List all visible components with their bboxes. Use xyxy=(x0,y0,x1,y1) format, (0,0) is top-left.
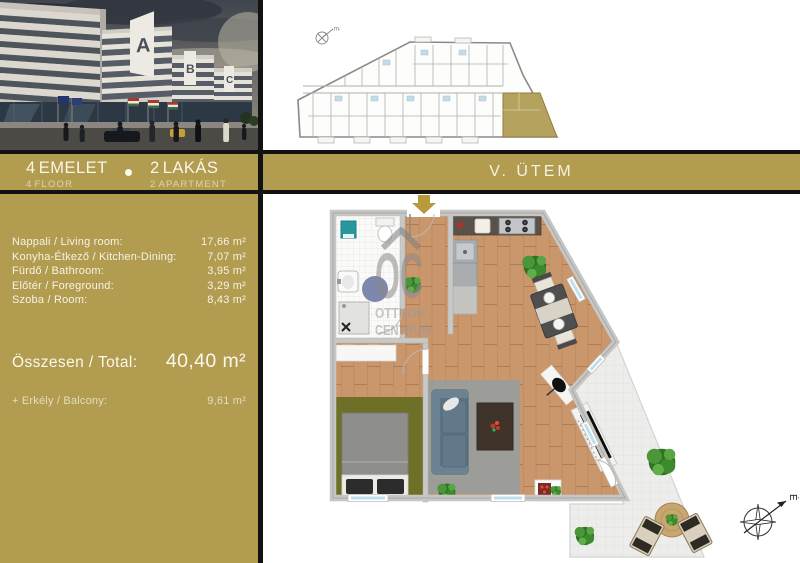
watermark-line2: CENTRUM xyxy=(375,322,431,339)
room-label: Előtér / Foreground: xyxy=(12,280,114,294)
stove xyxy=(499,218,535,234)
room-row: Előtér / Foreground: 3,29 m² xyxy=(12,280,246,294)
room-label: Konyha-Étkező / Kitchen-Dining: xyxy=(12,251,177,265)
room-value: 3,95 m² xyxy=(207,265,246,279)
kettle xyxy=(457,222,463,228)
horizontal-divider xyxy=(0,150,800,154)
building-a-label: A xyxy=(136,34,150,57)
total-value: 40,40 m² xyxy=(166,350,246,373)
separator-dot-icon xyxy=(125,169,132,176)
room-value: 17,66 m² xyxy=(201,236,246,250)
room-value: 8,43 m² xyxy=(207,294,246,308)
apartment-value-en: 2 xyxy=(150,179,156,190)
watermark: OC OTTHON CENTRUM xyxy=(375,230,431,339)
coffee-table xyxy=(477,403,513,450)
apartment-value: 2 xyxy=(150,159,160,178)
shower xyxy=(339,302,369,334)
room-value: 7,07 m² xyxy=(207,251,246,265)
washing-machine xyxy=(341,221,356,238)
balcony-value: 9,61 m² xyxy=(207,395,246,407)
room-value: 3,29 m² xyxy=(207,280,246,294)
total-row: Összesen / Total: 40,40 m² xyxy=(12,350,246,373)
room-list: Nappali / Living room: 17,66 m² Konyha-É… xyxy=(12,236,246,308)
floor-label-hu: EMELET xyxy=(39,159,108,178)
kitchen-counter xyxy=(453,216,541,235)
room-row: Fürdő / Bathroom: 3,95 m² xyxy=(12,265,246,279)
room-row: Nappali / Living room: 17,66 m² xyxy=(12,236,246,250)
apartment-label-hu: LAKÁS xyxy=(163,159,219,178)
bedroom-door-opening xyxy=(423,349,429,374)
floor-value: 4 xyxy=(26,159,36,178)
floor-apartment-bar: 4 EMELET 4 FLOOR 2 LAKÁS 2 APARTMENT xyxy=(0,154,258,190)
kitchen-sink-unit xyxy=(453,240,477,286)
balcony-label: + Erkély / Balcony: xyxy=(12,395,107,407)
compass-north-label: É xyxy=(787,494,800,501)
kitchen-lower-counter xyxy=(453,286,477,314)
room-row: Szoba / Room: 8,43 m² xyxy=(12,294,246,308)
cutting-board xyxy=(475,219,490,233)
phase-label: V. ÜTEM xyxy=(489,163,573,181)
brochure-page: A B C xyxy=(0,0,800,563)
window xyxy=(348,495,388,502)
building-photo: A B C xyxy=(0,0,258,150)
room-label: Szoba / Room: xyxy=(12,294,87,308)
bedroom-closet xyxy=(336,345,396,361)
site-plan: É xyxy=(263,0,800,150)
floor-value-en: 4 xyxy=(26,179,32,190)
watermark-logo: OC xyxy=(375,240,423,312)
phase-bar: V. ÜTEM xyxy=(263,154,800,190)
floor-label-en: FLOOR xyxy=(34,179,73,190)
compass-icon: É xyxy=(740,494,800,540)
room-label: Fürdő / Bathroom: xyxy=(12,265,104,279)
apartment-count: 2 LAKÁS 2 APARTMENT xyxy=(150,159,227,190)
floor-count: 4 EMELET 4 FLOOR xyxy=(26,159,108,190)
total-label: Összesen / Total: xyxy=(12,354,137,372)
apartment-label-en: APARTMENT xyxy=(158,179,227,190)
building-b-label: B xyxy=(186,62,195,76)
site-compass-north-label: É xyxy=(332,27,339,31)
room-row: Konyha-Étkező / Kitchen-Dining: 7,07 m² xyxy=(12,251,246,265)
bed xyxy=(342,413,408,496)
balcony-row: + Erkély / Balcony: 9,61 m² xyxy=(12,395,246,407)
window xyxy=(491,495,525,502)
building-c-label: C xyxy=(226,75,233,86)
floor-plan: OC OTTHON CENTRUM É xyxy=(263,194,800,563)
sofa xyxy=(432,390,468,474)
area-info-panel: Nappali / Living room: 17,66 m² Konyha-É… xyxy=(0,194,258,563)
bathroom-sink xyxy=(337,271,358,292)
watermark-line1: OTTHON xyxy=(375,305,425,322)
room-label: Nappali / Living room: xyxy=(12,236,123,250)
